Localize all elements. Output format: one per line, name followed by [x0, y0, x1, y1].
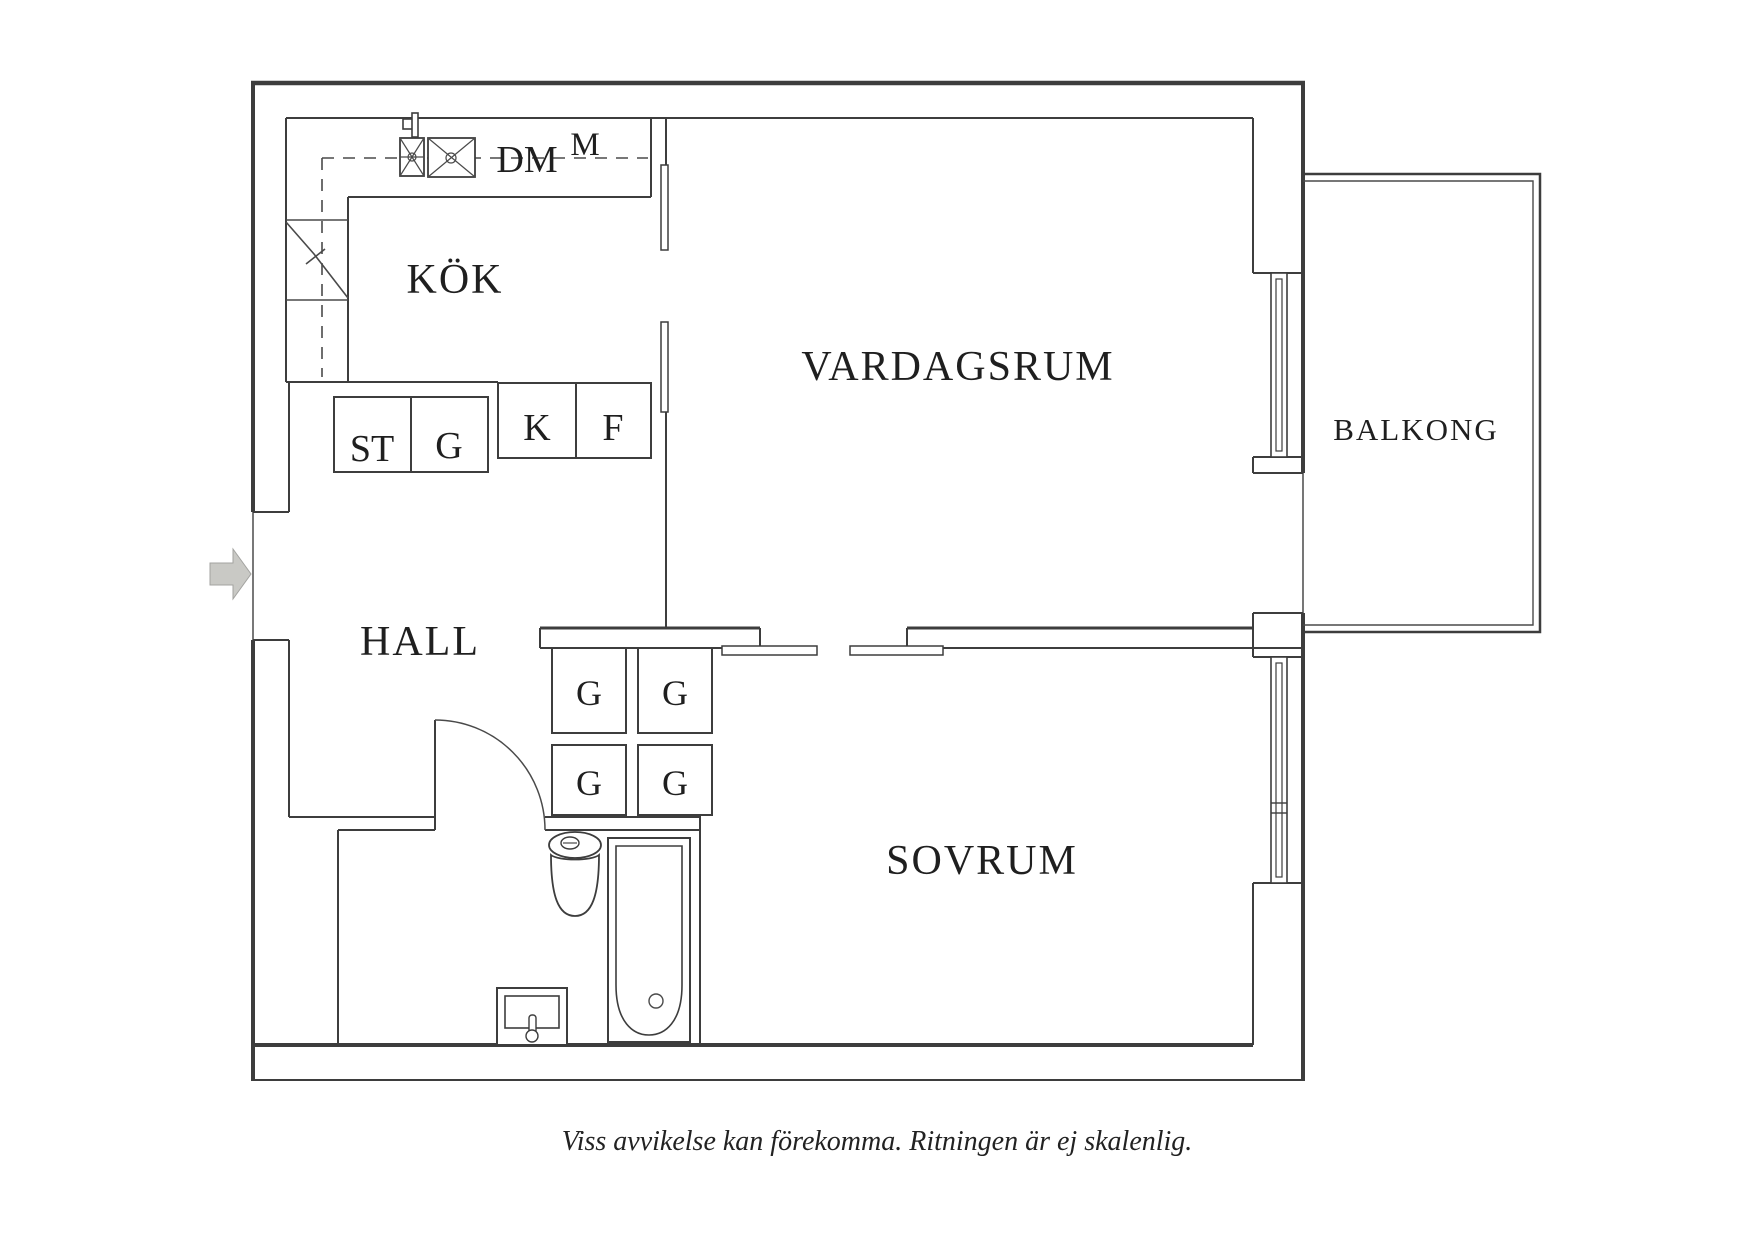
bathtub-icon: [608, 838, 690, 1042]
fridge-label: K: [523, 407, 551, 449]
bathroom-door: [435, 720, 545, 830]
hall-label: HALL: [360, 619, 480, 665]
closet-g1-label: G: [576, 673, 602, 713]
bedroom-window: [1253, 657, 1303, 883]
balcony-label: BALKONG: [1333, 412, 1499, 447]
freezer-label: F: [602, 407, 623, 449]
closet-g4-label: G: [662, 763, 688, 803]
cleaning-cabinet-label: ST: [350, 428, 394, 470]
kitchen-label: KÖK: [407, 257, 504, 303]
living-room-window: [1253, 273, 1303, 457]
bedroom-label: SOVRUM: [886, 838, 1078, 884]
kitchen-opening-frames: [661, 165, 668, 412]
balcony-railing: [1303, 174, 1540, 632]
kitchen-wardrobe-label: G: [435, 425, 462, 467]
sink-icon: [400, 113, 424, 176]
toilet-icon: [549, 832, 601, 916]
entry-opening: [253, 382, 289, 817]
floor-plan-page: KÖK VARDAGSRUM HALL SOVRUM BALKONG DM M …: [0, 0, 1754, 1240]
closet-g3-label: G: [576, 763, 602, 803]
living-room-label: VARDAGSRUM: [801, 344, 1114, 390]
washbasin-icon: [497, 988, 567, 1045]
entrance-arrow-icon: [210, 549, 251, 599]
dishwasher-label: DM: [496, 139, 557, 181]
disclaimer-caption: Viss avvikelse kan förekomma. Ritningen …: [562, 1126, 1193, 1157]
stove-icon: [428, 138, 475, 177]
kitchen-tall-cabinet-symbol: [286, 220, 348, 300]
balcony-door-opening: [1253, 473, 1303, 613]
kitchen-walls: [286, 118, 666, 628]
floor-plan-drawing: KÖK VARDAGSRUM HALL SOVRUM BALKONG DM M …: [0, 0, 1754, 1240]
outer-walls: [251, 83, 1305, 1080]
micro-label: M: [570, 127, 599, 163]
closet-g2-label: G: [662, 673, 688, 713]
